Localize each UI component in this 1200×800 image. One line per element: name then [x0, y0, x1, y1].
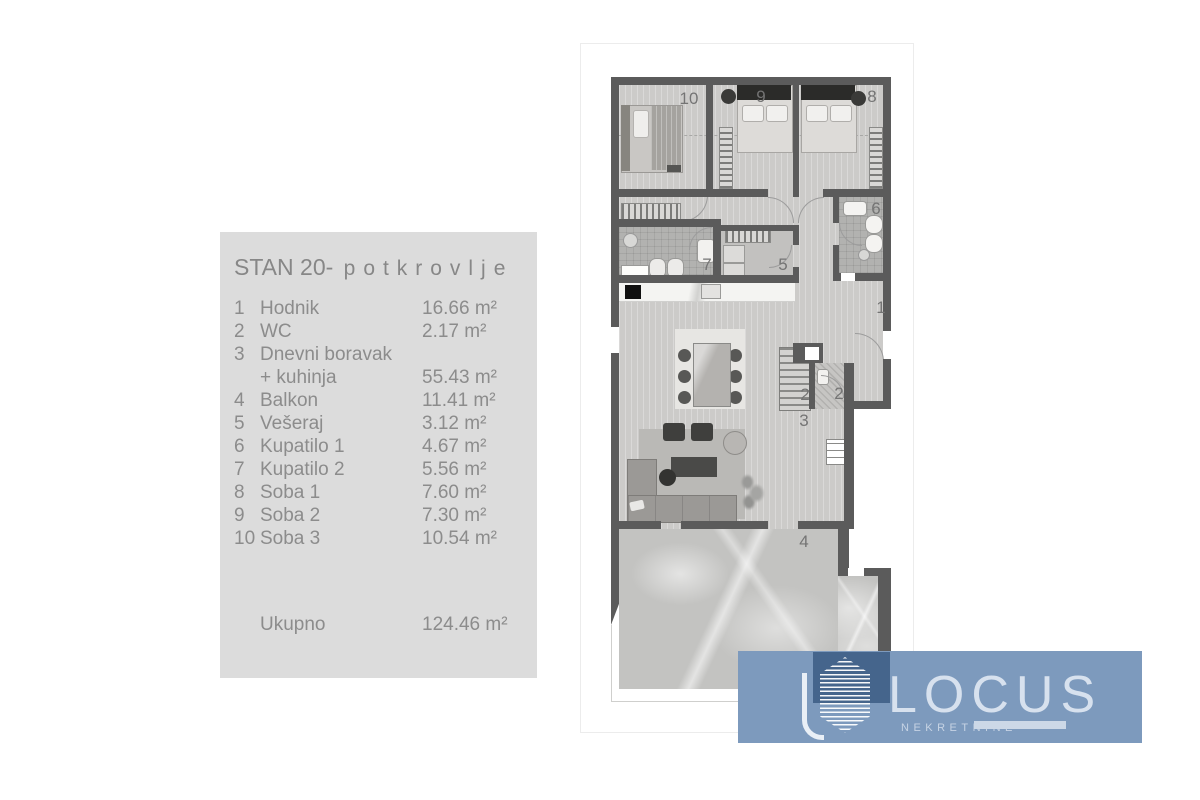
wall	[611, 77, 619, 529]
wall	[838, 568, 891, 576]
wall	[823, 189, 883, 197]
room-label-wc: 2	[834, 384, 843, 404]
wardrobe	[725, 229, 771, 243]
logo-wordmark: LOCUS	[888, 665, 1102, 725]
wardrobe	[719, 127, 733, 189]
wall	[833, 197, 839, 223]
pillow	[830, 105, 852, 122]
exterior-area	[854, 409, 894, 529]
wall	[681, 521, 768, 529]
floorplan: 10 9 8 6 7 5 1 2 2 3 4	[611, 77, 894, 702]
wall	[793, 189, 799, 197]
wall	[619, 275, 799, 283]
sofa	[627, 495, 737, 523]
window	[611, 327, 619, 353]
room-row: 2WC2.17 m²	[220, 320, 537, 343]
apartment-title: STAN 20- potkrovlje	[220, 232, 537, 281]
wall	[844, 363, 854, 529]
toilet	[623, 233, 638, 248]
room-label-kupatilo1: 6	[871, 199, 880, 219]
pillow	[742, 105, 764, 122]
room-label-hodnik: 1	[876, 298, 885, 318]
chair	[678, 349, 691, 362]
wall	[883, 77, 891, 331]
room-row: 3Dnevni boravak	[220, 343, 537, 366]
armchair	[691, 423, 713, 441]
wardrobe	[869, 127, 883, 189]
room-row: 4Balkon11.41 m²	[220, 389, 537, 412]
logo-underline-bar	[974, 721, 1066, 729]
room-row: + kuhinja55.43 m²	[220, 366, 537, 389]
room-row: 10Soba 310.54 m²	[220, 527, 537, 550]
chair	[678, 391, 691, 404]
stool	[851, 91, 866, 106]
room-row: 7Kupatilo 25.56 m²	[220, 458, 537, 481]
locus-bracket-icon	[802, 673, 824, 740]
spacer	[220, 550, 537, 613]
room-label-soba1: 8	[867, 87, 876, 107]
sink	[843, 201, 867, 216]
pillow	[633, 110, 649, 138]
wall	[850, 401, 891, 409]
balcony-edge-line	[611, 625, 612, 702]
stool	[721, 89, 736, 104]
wall	[793, 85, 799, 189]
room-row: 6Kupatilo 14.67 m²	[220, 435, 537, 458]
room-row: 9Soba 27.30 m²	[220, 504, 537, 527]
wall	[611, 529, 619, 625]
room-list-panel: STAN 20- potkrovlje 1Hodnik16.66 m² 2WC2…	[220, 232, 537, 678]
room-list: 1Hodnik16.66 m² 2WC2.17 m² 3Dnevni borav…	[220, 297, 537, 636]
plant	[737, 469, 767, 513]
wall	[611, 189, 768, 197]
pouf	[659, 469, 676, 486]
washing-machine	[723, 245, 745, 263]
wall	[798, 521, 844, 529]
wall	[838, 529, 849, 568]
room-row: 1Hodnik16.66 m²	[220, 297, 537, 320]
bed-headboard	[621, 105, 630, 171]
room-row: 8Soba 17.60 m²	[220, 481, 537, 504]
dining-table	[693, 343, 731, 407]
wall	[706, 85, 713, 189]
wall	[619, 219, 719, 227]
apartment-title-main: STAN 20	[234, 254, 326, 280]
total-label: Ukupno	[260, 613, 422, 636]
wall	[713, 219, 721, 283]
room-label-dnevni: 3	[799, 411, 808, 431]
kitchen-sink	[701, 284, 721, 299]
shower	[805, 347, 819, 360]
bed-blanket	[651, 106, 681, 170]
stove	[625, 285, 641, 299]
room-label-soba3: 10	[680, 89, 699, 109]
floorplan-page: 10 9 8 6 7 5 1 2 2 3 4	[580, 43, 914, 733]
side-table	[723, 431, 747, 455]
room-row: 5Vešeraj3.12 m²	[220, 412, 537, 435]
door-notch	[841, 273, 855, 281]
chair	[678, 370, 691, 383]
total-row: Ukupno124.46 m²	[220, 613, 537, 636]
toilet	[858, 249, 870, 261]
wall	[793, 225, 799, 245]
coffee-table	[671, 457, 717, 477]
door-notch	[848, 568, 864, 576]
total-area: 124.46 m²	[422, 613, 537, 636]
agency-logo: LOCUS NEKRETNINE	[738, 651, 1142, 743]
pillow	[806, 105, 828, 122]
room-label-balkon: 4	[799, 532, 808, 552]
flyer: STAN 20- potkrovlje 1Hodnik16.66 m² 2WC2…	[0, 0, 1200, 800]
bed-bench	[667, 165, 681, 172]
room-label-veseraj: 5	[778, 255, 787, 275]
room-label-wc: 2	[800, 385, 809, 405]
armchair	[663, 423, 685, 441]
wall	[619, 521, 661, 529]
room-label-kupatilo2: 7	[702, 255, 711, 275]
bed-blanket	[801, 85, 855, 100]
wall	[611, 77, 891, 85]
apartment-title-floor: potkrovlje	[344, 257, 514, 280]
room-label-soba2: 9	[756, 87, 765, 107]
wall	[721, 225, 799, 231]
pillow	[766, 105, 788, 122]
